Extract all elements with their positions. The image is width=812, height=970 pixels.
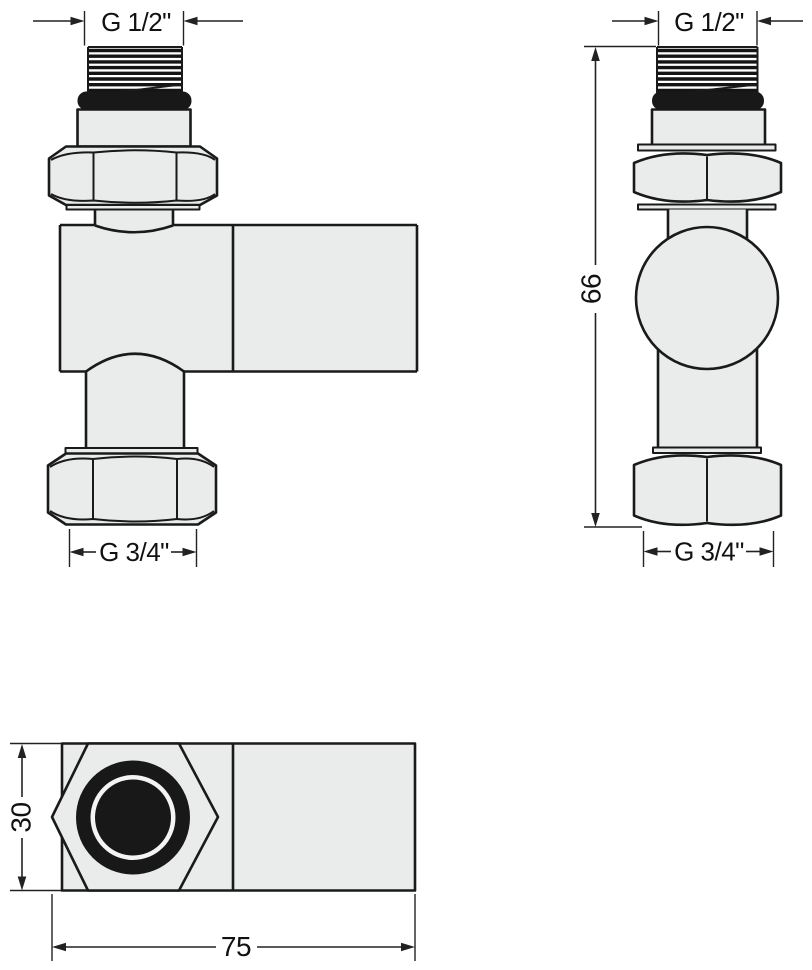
dimension-g12-right: G 1/2" <box>612 7 803 46</box>
arrowhead-up-icon <box>591 47 600 61</box>
arrowhead-left-icon <box>644 547 658 556</box>
union-nut-top <box>634 145 781 210</box>
tailpiece <box>652 110 765 147</box>
drawing-sheet: G 1/2" <box>0 0 812 970</box>
straight-valve-front-view: G 1/2" <box>576 7 804 567</box>
nut-silhouette <box>48 454 216 525</box>
arrowhead-right-icon <box>760 547 774 556</box>
valve-body <box>60 209 417 449</box>
o-ring-seal <box>78 92 192 111</box>
nut-washer-face <box>638 205 776 210</box>
arrowhead-right-icon <box>401 943 415 952</box>
dim-label-g34-right: G 3/4" <box>674 537 744 567</box>
union-nut-top <box>49 147 217 210</box>
arrowhead-right-icon <box>183 548 197 557</box>
nut-washer-face <box>638 145 776 151</box>
o-ring-seal <box>652 92 764 111</box>
nut-silhouette <box>49 147 217 206</box>
union-nut-bottom <box>634 448 781 525</box>
arrowhead-down-icon <box>591 513 600 527</box>
arrowhead-down-icon <box>18 877 27 891</box>
angle-valve-side-view: G 1/2" <box>33 7 417 567</box>
dim-label-g34-left: G 3/4" <box>99 537 169 567</box>
nut-washer-face <box>653 448 761 454</box>
lower-neck-fill <box>86 372 184 449</box>
arrowhead-left-icon <box>52 943 66 952</box>
arrowhead-left-icon <box>70 548 84 557</box>
dim-label-g12-right: G 1/2" <box>674 7 744 37</box>
union-nut-bottom <box>48 448 216 525</box>
valve-body-plan-view: 30 75 <box>6 744 416 963</box>
port-bore <box>95 780 171 856</box>
threaded-port <box>76 761 190 875</box>
dim-label-length-75: 75 <box>221 931 251 962</box>
dim-label-g12-left: G 1/2" <box>101 7 171 37</box>
dim-label-height-66: 66 <box>576 274 607 304</box>
body-fill <box>60 225 417 372</box>
arrowhead-right-icon <box>645 17 659 26</box>
valve-technical-drawing: G 1/2" <box>0 0 812 970</box>
dim-label-width-30: 30 <box>6 802 37 832</box>
arrowhead-left-icon <box>757 17 771 26</box>
valve-head-circle <box>636 227 778 369</box>
tailpiece <box>78 110 191 147</box>
arrowhead-up-icon <box>18 744 27 758</box>
male-thread <box>657 47 758 93</box>
dimension-length-75: 75 <box>52 894 415 962</box>
nut-washer-face <box>67 205 200 210</box>
dimension-g34-right: G 3/4" <box>644 531 774 567</box>
dimension-g34-left: G 3/4" <box>70 529 197 567</box>
dimension-g12-left: G 1/2" <box>33 7 243 46</box>
arrowhead-right-icon <box>71 17 85 26</box>
arrowhead-left-icon <box>184 17 198 26</box>
thread-ridges <box>658 51 757 91</box>
male-thread <box>88 47 182 93</box>
thread-ridges <box>89 51 181 91</box>
